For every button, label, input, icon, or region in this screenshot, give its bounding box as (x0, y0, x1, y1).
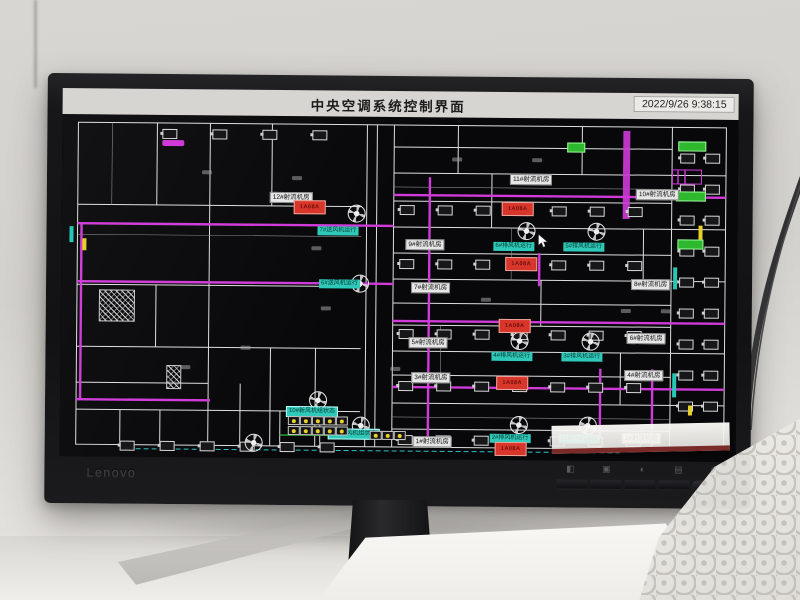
tiny-text-mark (532, 158, 542, 162)
room-label: 11#射流机房 (510, 174, 552, 185)
damper-box (628, 207, 643, 217)
indicator-light (324, 426, 336, 435)
brightness-icon[interactable]: ◐ (634, 463, 650, 475)
pipe-segment (69, 226, 73, 242)
damper-box (400, 205, 415, 215)
indicator-light (288, 416, 300, 425)
indicator-light (370, 431, 382, 440)
room-label: 7#射流机房 (411, 282, 450, 293)
fan-run-status-label[interactable]: 5#排风机运行 (563, 242, 604, 251)
damper-box (551, 260, 566, 270)
damper-box (162, 129, 177, 139)
damper-box (475, 260, 490, 270)
alarm-tag[interactable]: 1A08A (496, 376, 528, 390)
indicator-light (312, 416, 324, 425)
input-source-icon[interactable]: ▣ (598, 463, 614, 475)
stairwell-hatch (99, 289, 135, 321)
alarm-tag[interactable]: 1A08A (502, 202, 534, 216)
damper-box (704, 278, 719, 288)
indicator-light (324, 416, 336, 425)
damper-box (120, 441, 135, 451)
alarm-tag[interactable]: 1A08A (294, 200, 326, 214)
fan-icon[interactable] (581, 333, 599, 351)
menu-icon[interactable]: ▤ (670, 463, 686, 475)
room-label: 5#射流机房 (409, 337, 448, 348)
indicator-light (336, 416, 348, 425)
fan-icon[interactable] (587, 223, 605, 241)
monitor: 中央空调系统控制界面 2022/9/26 9:38:15 (44, 73, 754, 509)
damper-box (212, 129, 227, 139)
damper-box (704, 247, 719, 257)
page-title: 中央空调系统控制界面 (311, 94, 466, 115)
damper-box (438, 205, 453, 215)
indicator-light (382, 431, 394, 440)
run-indicator (567, 142, 585, 152)
damper-box (320, 442, 335, 452)
damper-box (200, 441, 215, 451)
damper-box (590, 207, 605, 217)
damper-box (160, 441, 175, 451)
damper-box (262, 130, 277, 140)
pipe-segment (672, 373, 676, 397)
fan-run-status-label[interactable]: 6#排风机运行 (493, 242, 534, 251)
valve-indicator (688, 406, 692, 416)
indicator-light (336, 426, 348, 435)
alarm-tag[interactable]: 1A08A (499, 319, 531, 333)
tiny-text-mark (390, 367, 400, 371)
fan-icon[interactable] (510, 416, 528, 434)
stairwell-hatch (166, 365, 181, 389)
fan-run-status-label[interactable]: 7#送风机运行 (317, 226, 358, 235)
valve-indicator (698, 226, 702, 240)
duct-tag (162, 140, 184, 146)
tiny-text-mark (321, 306, 331, 310)
alarm-tag[interactable]: 1A08A (505, 257, 537, 271)
screen: 中央空调系统控制界面 2022/9/26 9:38:15 (60, 88, 739, 462)
run-indicator (678, 141, 706, 151)
indicator-light (300, 416, 312, 425)
room-label: 4#射流机房 (624, 370, 663, 381)
floorplan-items-layer: 12#射流机房11#射流机房10#射流机房9#射流机房8#射流机房7#射流机房6… (60, 114, 739, 462)
damper-box (703, 340, 718, 350)
bezel-button-2[interactable] (590, 480, 621, 489)
tiny-text-mark (481, 298, 491, 302)
tiny-text-mark (292, 176, 302, 180)
tiny-text-mark (311, 246, 321, 250)
indicator-light (300, 426, 312, 435)
lenovo-logo: Lenovo (86, 465, 136, 479)
screen-glare-reflection (551, 422, 730, 453)
fan-icon[interactable] (245, 434, 263, 452)
fan-icon[interactable] (517, 222, 535, 240)
fan-icon[interactable] (348, 205, 366, 223)
damper-box (679, 339, 694, 349)
damper-box (475, 330, 490, 340)
indicator-light (288, 426, 300, 435)
damper-box (703, 371, 718, 381)
photo-of-monitor: 中央空调系统控制界面 2022/9/26 9:38:15 (0, 0, 800, 600)
run-indicator (676, 191, 706, 201)
bezel-button-3[interactable] (624, 480, 655, 489)
damper-box (627, 261, 642, 271)
room-label: 8#射流机房 (631, 279, 670, 290)
damper-box (474, 436, 489, 446)
indicator-light-panel (370, 431, 405, 440)
bezel-button-4[interactable] (658, 480, 689, 489)
fan-run-status-label[interactable]: 4#排风机运行 (491, 352, 532, 361)
damper-box (588, 383, 603, 393)
damper-box (280, 442, 295, 452)
damper-box (474, 382, 489, 392)
ahu-unit-icon (672, 169, 702, 184)
room-label: 9#射流机房 (405, 239, 444, 250)
damper-box (550, 382, 565, 392)
tiny-text-mark (621, 309, 631, 313)
indicator-light (312, 426, 324, 435)
room-label: 1#射流机房 (413, 436, 452, 447)
tiny-text-mark (202, 170, 212, 174)
damper-box (476, 206, 491, 216)
tiny-text-mark (661, 309, 671, 313)
damper-box (705, 216, 720, 226)
damper-box (679, 277, 694, 287)
indicator-light (394, 431, 406, 440)
damper-box (589, 261, 604, 271)
damper-box (680, 215, 695, 225)
mouse-cursor (537, 234, 549, 248)
damper-box (399, 259, 414, 269)
bezel-button-icons: ◧▣◐▤◉ (562, 462, 722, 475)
tiny-text-mark (452, 157, 462, 161)
cad-floorplan-canvas[interactable]: 12#射流机房11#射流机房10#射流机房9#射流机房8#射流机房7#射流机房6… (60, 114, 739, 462)
damper-box (680, 153, 695, 163)
tiny-text-mark (240, 346, 250, 350)
damper-box (551, 330, 566, 340)
alarm-tag[interactable]: 1A08A (495, 442, 527, 456)
damper-box (679, 308, 694, 318)
damper-box (705, 185, 720, 195)
damper-box (705, 154, 720, 164)
room-label: 3#射流机房 (411, 372, 450, 383)
room-label: 6#射流机房 (627, 333, 666, 344)
nav-icon[interactable]: ◧ (562, 462, 578, 474)
datetime-display: 2022/9/26 9:38:15 (634, 96, 735, 113)
room-label: 10#射流机房 (636, 189, 679, 200)
damper-box (704, 309, 719, 319)
bezel-button-1[interactable] (556, 479, 587, 488)
indicator-light-panel (288, 416, 347, 436)
damper-box (312, 130, 327, 140)
valve-indicator (82, 238, 86, 250)
damper-box (552, 206, 567, 216)
damper-box (437, 259, 452, 269)
damper-box (626, 383, 641, 393)
run-indicator (677, 239, 703, 249)
damper-box (703, 402, 718, 412)
tiny-text-mark (180, 365, 190, 369)
fan-run-status-label[interactable]: 3#排风机运行 (561, 352, 602, 361)
pipe-segment (673, 267, 677, 289)
fan-icon[interactable] (510, 332, 528, 350)
fan-run-status-label[interactable]: 6#送风机运行 (319, 279, 360, 288)
damper-box (678, 370, 693, 380)
